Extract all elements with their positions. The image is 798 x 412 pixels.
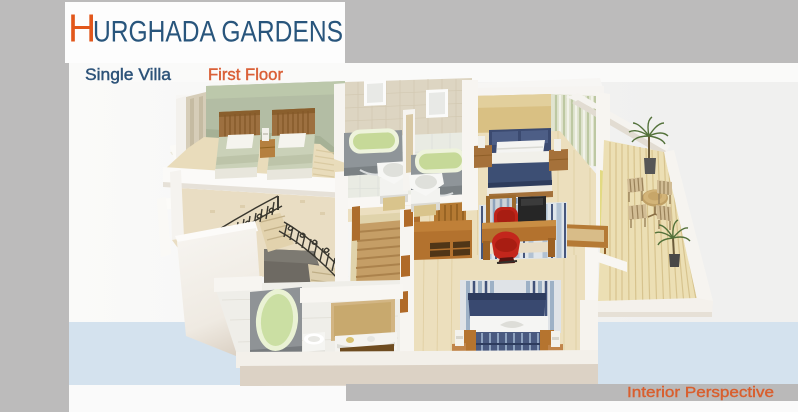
svg-text:Interior Perspective: Interior Perspective <box>627 384 774 401</box>
svg-text:First Floor: First Floor <box>208 66 284 84</box>
svg-text:Single Villa: Single Villa <box>85 66 172 84</box>
svg-text:URGHADA GARDENS: URGHADA GARDENS <box>93 16 343 49</box>
svg-text:H: H <box>68 8 96 51</box>
